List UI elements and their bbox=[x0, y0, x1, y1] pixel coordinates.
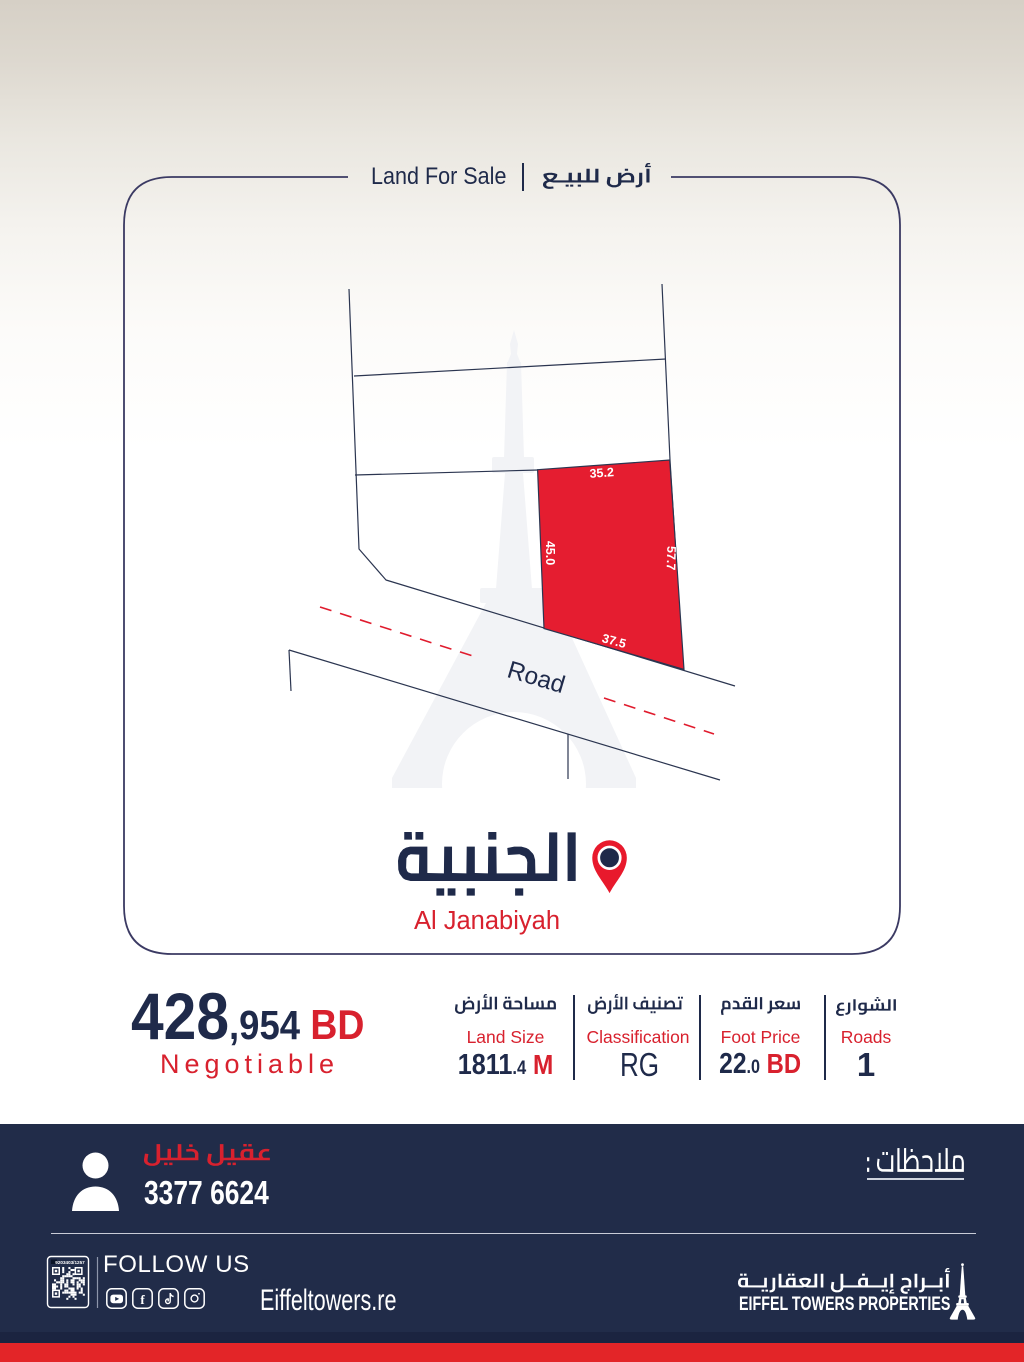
svg-text:9203403/1257: 9203403/1257 bbox=[55, 1260, 85, 1265]
svg-text:f: f bbox=[140, 1292, 145, 1307]
